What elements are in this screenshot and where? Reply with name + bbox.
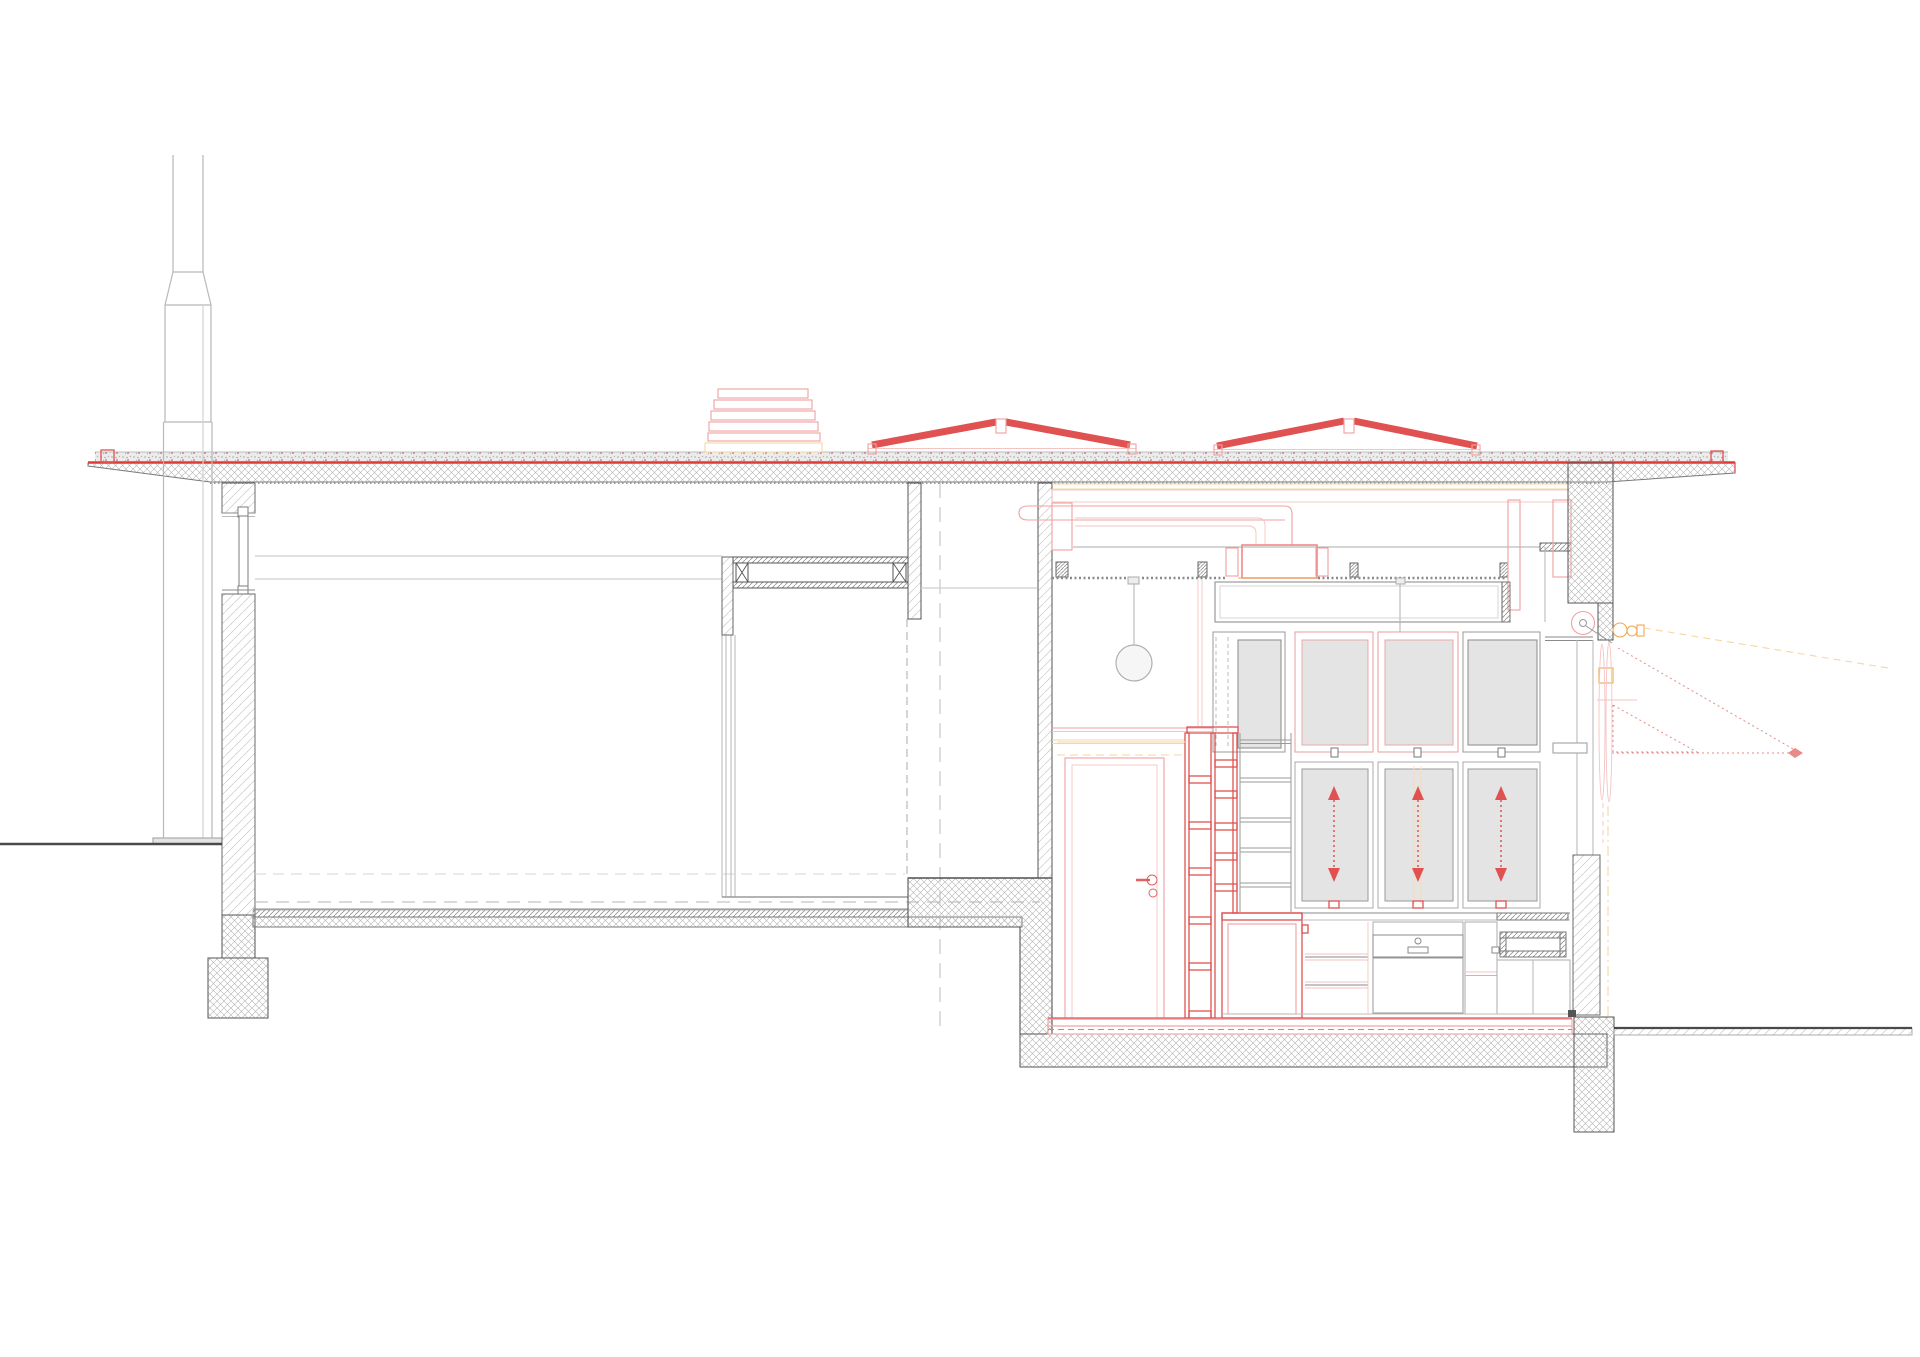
left-room [253, 556, 1040, 927]
hinge [1414, 748, 1421, 757]
red-cabinet-door [1228, 924, 1296, 1014]
step-foundation [908, 878, 1052, 1034]
clerestory-mullion [239, 516, 248, 586]
red-drop-pipe [1198, 579, 1202, 727]
awning-extended-outline [1612, 648, 1800, 753]
shelves [1240, 740, 1291, 887]
lift-door-panel [1468, 769, 1537, 901]
return-duct [1075, 518, 1265, 545]
hopper-glass [1238, 640, 1281, 748]
kitchen-counter [1222, 913, 1570, 1018]
roof-gravel-layer [95, 452, 1728, 462]
hopper-glass [1468, 640, 1537, 745]
duct-riser-left [1052, 503, 1072, 550]
floor-slab [253, 917, 1022, 927]
open-shelf-cabinet [1305, 922, 1368, 1013]
monitor-ridge-vent [1344, 419, 1354, 433]
right-base-cabinet [1465, 922, 1497, 1014]
ventilation-unit [1242, 545, 1317, 578]
pendant-globe [1116, 645, 1152, 681]
appliance-front [1373, 958, 1463, 1013]
louver-slat [708, 433, 820, 441]
rooflight-monitor-left [868, 419, 1136, 454]
red-base-cabinet [1222, 913, 1302, 1018]
left-exterior-wall [222, 483, 255, 915]
monitor-slope [1217, 421, 1344, 446]
beam-top-chord [733, 557, 908, 563]
louver-slat [711, 411, 815, 420]
roller-axle [1580, 620, 1587, 627]
rooflight-monitor-right [1214, 419, 1480, 455]
partition-post [722, 557, 733, 635]
timber-beam [733, 557, 908, 588]
step-mass [908, 878, 1052, 1034]
hopper-glass [1302, 640, 1368, 745]
wall-niche-box [1492, 913, 1570, 1014]
pendant-mount [1396, 578, 1405, 584]
right-foundation [1574, 1017, 1614, 1132]
louver-slat [709, 422, 818, 431]
ceiling-batten [1198, 562, 1207, 577]
hinge [1331, 748, 1338, 757]
drawing-sheet [0, 0, 1920, 1357]
awning-sight-line [1644, 628, 1888, 668]
hopper-window-row [1213, 632, 1540, 757]
duct-stub [1316, 548, 1328, 576]
roof-slab [88, 463, 1735, 482]
foundation-stem [222, 915, 255, 958]
louver-curb [705, 443, 822, 452]
wall-upper [1568, 463, 1613, 603]
red-floor-buildup [1048, 1019, 1572, 1035]
folded-arm [1599, 644, 1605, 800]
hopper-glass [1385, 640, 1453, 745]
window-sill-box [1553, 743, 1587, 753]
monitor-slope [1006, 422, 1130, 445]
red-counter-top [1222, 913, 1302, 920]
awning-mech-circle [1613, 623, 1627, 637]
pendant-mount [1128, 577, 1139, 584]
hinge [1498, 748, 1505, 757]
middle-column [908, 483, 921, 619]
roof-assembly [88, 450, 1735, 483]
monitor-slope [872, 422, 996, 445]
wall-body [222, 594, 255, 915]
ceiling-batten [1500, 563, 1508, 577]
niche-knob [1492, 947, 1499, 953]
glazed-partition [722, 557, 908, 897]
lift-door-row [1295, 762, 1540, 908]
awning-tip-marker [1788, 748, 1803, 758]
ceiling-red-hatch-band [1052, 490, 1568, 502]
ladder-shelf [1185, 727, 1238, 1018]
louver-slat [718, 389, 808, 398]
ground-lines [0, 844, 1912, 1035]
drawer-unit [1373, 922, 1463, 1014]
ceiling-batten [1056, 562, 1068, 577]
folding-arm-awning [1597, 623, 1888, 1026]
bottom-slab [1020, 1034, 1607, 1067]
pendant-light-left [1116, 577, 1152, 681]
ceiling-batten [1350, 563, 1358, 577]
room-left-wall [1038, 483, 1052, 878]
door-leaf-inner [1072, 765, 1157, 1019]
left-foundation [208, 915, 268, 1018]
section-drawing [0, 0, 1920, 1357]
chimney [153, 155, 222, 844]
folded-arm [1606, 642, 1612, 802]
ladder-shelf-bars [1189, 760, 1237, 1018]
footing [208, 958, 268, 1018]
duct-stub [1226, 548, 1238, 576]
awning-arm-triangle [1613, 705, 1697, 752]
chimney-lower-shaft [164, 422, 213, 843]
chimney-flue-top [165, 155, 211, 305]
beam-bottom-chord [733, 582, 908, 588]
wall-base-point [1568, 1010, 1576, 1017]
wall-over-roller [1598, 603, 1613, 640]
interior-door [1057, 742, 1187, 1019]
cabinet-hinge [1302, 925, 1308, 933]
window-head [1545, 637, 1593, 641]
floor-finish-layer [253, 910, 908, 917]
louvered-rooflight [705, 389, 822, 452]
awning-roller [1572, 612, 1595, 635]
monitor-slope [1354, 421, 1477, 446]
transom-end-post [1502, 582, 1510, 622]
awning-mech-circle [1627, 626, 1637, 636]
screed-layer [1048, 1019, 1572, 1026]
chimney-mid-shaft [164, 305, 212, 422]
louver-slat [714, 400, 812, 409]
awning-bracket [1637, 625, 1644, 636]
door-keyhole [1149, 889, 1157, 897]
bookshelf [1240, 733, 1291, 912]
door-leaf [1065, 758, 1164, 1019]
wall-lower [1573, 855, 1600, 1015]
monitor-ridge-vent [996, 419, 1006, 433]
